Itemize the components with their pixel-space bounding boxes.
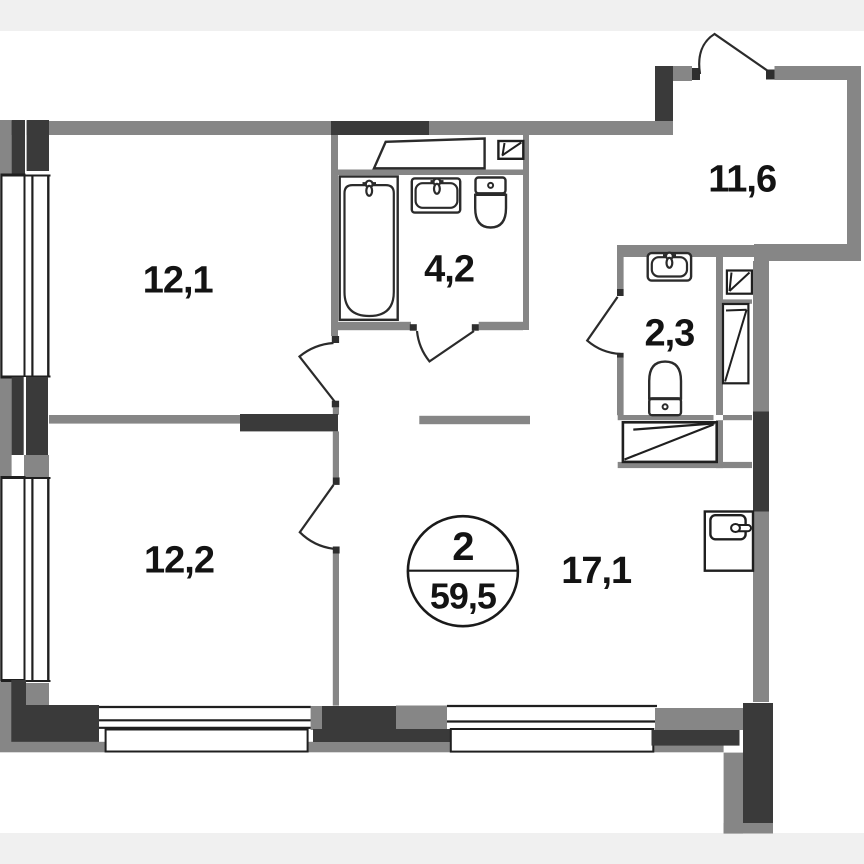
svg-text:12,1: 12,1	[143, 259, 214, 301]
svg-text:59,5: 59,5	[430, 576, 497, 617]
svg-text:4,2: 4,2	[424, 249, 474, 291]
svg-text:11,6: 11,6	[708, 158, 776, 200]
svg-text:17,1: 17,1	[561, 550, 632, 592]
svg-text:2: 2	[452, 525, 474, 569]
svg-text:2,3: 2,3	[644, 313, 694, 355]
svg-text:12,2: 12,2	[144, 539, 214, 581]
